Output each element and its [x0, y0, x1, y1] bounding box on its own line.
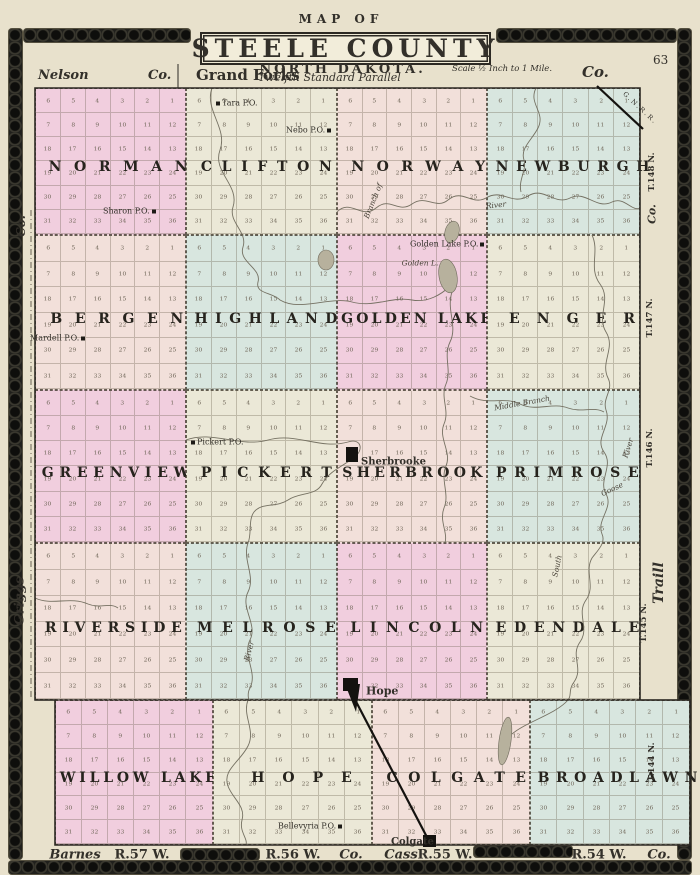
- section-18: 18: [488, 596, 513, 622]
- section-29: 29: [212, 186, 237, 210]
- section-5: 5: [557, 701, 583, 725]
- section-32: 32: [61, 364, 86, 390]
- edge-t-144-n-: T.144 N.: [647, 742, 657, 781]
- section-15: 15: [610, 749, 636, 773]
- place-tara-p-o-: Tara P.O.: [214, 99, 258, 108]
- section-26: 26: [477, 796, 503, 820]
- section-30: 30: [338, 492, 363, 517]
- section-36: 36: [160, 517, 185, 542]
- section-5: 5: [61, 89, 86, 113]
- section-29: 29: [82, 796, 108, 820]
- section-8: 8: [513, 416, 538, 441]
- section-15: 15: [412, 137, 437, 161]
- section-2: 2: [135, 236, 160, 262]
- section-25: 25: [160, 338, 185, 364]
- section-34: 34: [134, 820, 160, 844]
- section-5: 5: [363, 89, 388, 113]
- edge-traill: Traill: [651, 562, 667, 604]
- township-name: NORWAY: [338, 159, 499, 175]
- section-6: 6: [338, 544, 363, 570]
- township-name: RIVERSIDE: [36, 620, 191, 636]
- section-36: 36: [311, 210, 336, 234]
- section-31: 31: [36, 364, 61, 390]
- section-3: 3: [262, 236, 287, 262]
- section-34: 34: [412, 364, 437, 390]
- section-32: 32: [513, 673, 538, 699]
- section-30: 30: [36, 492, 61, 517]
- section-17: 17: [513, 287, 538, 313]
- section-3: 3: [412, 391, 437, 416]
- section-15: 15: [412, 287, 437, 313]
- section-35: 35: [135, 517, 160, 542]
- section-17: 17: [240, 749, 266, 773]
- section-10: 10: [412, 570, 437, 596]
- section-33: 33: [237, 673, 262, 699]
- section-6: 6: [338, 236, 363, 262]
- section-34: 34: [610, 820, 636, 844]
- section-16: 16: [237, 287, 262, 313]
- township-name: GOLDEN LAKE: [338, 311, 489, 327]
- township-willow-lake: 6543217891011121817161514131920212223243…: [55, 700, 213, 845]
- section-32: 32: [240, 820, 266, 844]
- bottom-edge-r-55-w--5: R.55 W.: [417, 848, 472, 863]
- section-35: 35: [589, 364, 614, 390]
- section-30: 30: [56, 796, 82, 820]
- section-35: 35: [636, 820, 662, 844]
- section-10: 10: [111, 262, 136, 288]
- section-29: 29: [212, 647, 237, 673]
- section-7: 7: [488, 113, 513, 137]
- section-36: 36: [461, 517, 486, 542]
- section-12: 12: [311, 570, 336, 596]
- section-1: 1: [614, 236, 639, 262]
- section-1: 1: [461, 391, 486, 416]
- section-26: 26: [135, 492, 160, 517]
- edge-co-: Co.: [646, 204, 659, 224]
- section-18: 18: [338, 137, 363, 161]
- section-8: 8: [363, 416, 388, 441]
- section-1: 1: [160, 544, 185, 570]
- section-29: 29: [513, 647, 538, 673]
- section-7: 7: [187, 570, 212, 596]
- section-5: 5: [212, 544, 237, 570]
- section-28: 28: [86, 492, 111, 517]
- section-25: 25: [461, 647, 486, 673]
- section-13: 13: [311, 287, 336, 313]
- section-9: 9: [538, 113, 563, 137]
- section-14: 14: [477, 749, 503, 773]
- section-13: 13: [461, 596, 486, 622]
- section-4: 4: [584, 701, 610, 725]
- section-7: 7: [531, 725, 557, 749]
- section-5: 5: [513, 89, 538, 113]
- po-marker: [81, 337, 85, 341]
- township-name: WILLOW LAKE: [56, 770, 216, 786]
- section-35: 35: [286, 210, 311, 234]
- section-8: 8: [513, 570, 538, 596]
- township-name: HIGHLAND: [187, 311, 343, 327]
- section-26: 26: [286, 186, 311, 210]
- section-2: 2: [589, 89, 614, 113]
- section-13: 13: [160, 287, 185, 313]
- section-7: 7: [338, 113, 363, 137]
- section-30: 30: [338, 338, 363, 364]
- section-36: 36: [614, 364, 639, 390]
- section-14: 14: [286, 441, 311, 466]
- section-11: 11: [437, 113, 462, 137]
- section-27: 27: [262, 338, 287, 364]
- section-18: 18: [531, 749, 557, 773]
- water-label-golden-l--0: Golden L.: [402, 259, 439, 268]
- section-26: 26: [589, 338, 614, 364]
- section-35: 35: [589, 210, 614, 234]
- section-14: 14: [319, 749, 345, 773]
- township-name: COLGATE: [373, 770, 540, 786]
- section-28: 28: [387, 338, 412, 364]
- section-31: 31: [488, 210, 513, 234]
- township-greenview: 6543217891011121817161514131920212223243…: [35, 390, 186, 543]
- section-28: 28: [584, 796, 610, 820]
- section-29: 29: [61, 647, 86, 673]
- section-36: 36: [186, 820, 212, 844]
- section-29: 29: [240, 796, 266, 820]
- section-30: 30: [187, 492, 212, 517]
- township-name: PICKERT: [187, 465, 346, 481]
- section-29: 29: [513, 338, 538, 364]
- section-28: 28: [86, 647, 111, 673]
- section-3: 3: [262, 89, 287, 113]
- section-10: 10: [262, 416, 287, 441]
- bottom-edge-r-57-w--1: R.57 W.: [114, 848, 169, 863]
- section-28: 28: [387, 492, 412, 517]
- section-30: 30: [36, 647, 61, 673]
- section-29: 29: [557, 796, 583, 820]
- section-26: 26: [437, 338, 462, 364]
- section-36: 36: [614, 517, 639, 542]
- section-29: 29: [513, 186, 538, 210]
- section-31: 31: [187, 210, 212, 234]
- section-32: 32: [363, 364, 388, 390]
- bottom-edge-co--3: Co.: [339, 848, 362, 863]
- section-7: 7: [36, 416, 61, 441]
- section-13: 13: [311, 137, 336, 161]
- section-32: 32: [61, 673, 86, 699]
- section-35: 35: [160, 820, 186, 844]
- section-13: 13: [160, 596, 185, 622]
- section-7: 7: [338, 416, 363, 441]
- section-16: 16: [387, 287, 412, 313]
- section-1: 1: [160, 89, 185, 113]
- section-11: 11: [135, 113, 160, 137]
- section-36: 36: [663, 820, 689, 844]
- section-11: 11: [160, 725, 186, 749]
- section-7: 7: [36, 570, 61, 596]
- section-16: 16: [538, 596, 563, 622]
- section-30: 30: [488, 338, 513, 364]
- section-5: 5: [363, 236, 388, 262]
- section-34: 34: [563, 364, 588, 390]
- section-17: 17: [61, 137, 86, 161]
- section-28: 28: [86, 338, 111, 364]
- section-9: 9: [425, 725, 451, 749]
- section-10: 10: [412, 113, 437, 137]
- township-name: NORMAN: [36, 159, 198, 175]
- section-35: 35: [286, 517, 311, 542]
- section-36: 36: [503, 820, 529, 844]
- section-30: 30: [214, 796, 240, 820]
- section-27: 27: [451, 796, 477, 820]
- township-name: EDENDALE: [488, 620, 647, 636]
- section-26: 26: [286, 492, 311, 517]
- section-32: 32: [212, 210, 237, 234]
- section-16: 16: [538, 441, 563, 466]
- section-13: 13: [614, 596, 639, 622]
- section-10: 10: [111, 113, 136, 137]
- township-name: NEWBURGH: [488, 159, 647, 175]
- section-2: 2: [477, 701, 503, 725]
- section-8: 8: [363, 570, 388, 596]
- section-16: 16: [86, 596, 111, 622]
- section-15: 15: [111, 287, 136, 313]
- section-13: 13: [461, 137, 486, 161]
- section-16: 16: [387, 137, 412, 161]
- place-golden-lake-p-o-: Golden Lake P.O.: [410, 240, 486, 249]
- section-34: 34: [262, 517, 287, 542]
- section-18: 18: [488, 287, 513, 313]
- section-29: 29: [363, 338, 388, 364]
- section-13: 13: [311, 596, 336, 622]
- section-36: 36: [160, 364, 185, 390]
- section-15: 15: [563, 137, 588, 161]
- bottom-edge-co--7: Co.: [647, 848, 670, 863]
- section-14: 14: [135, 596, 160, 622]
- section-3: 3: [262, 544, 287, 570]
- section-15: 15: [134, 749, 160, 773]
- section-5: 5: [513, 544, 538, 570]
- section-14: 14: [286, 137, 311, 161]
- section-10: 10: [262, 262, 287, 288]
- section-1: 1: [160, 391, 185, 416]
- section-7: 7: [373, 725, 399, 749]
- section-3: 3: [563, 391, 588, 416]
- section-32: 32: [513, 364, 538, 390]
- section-6: 6: [187, 89, 212, 113]
- section-11: 11: [589, 113, 614, 137]
- section-31: 31: [338, 364, 363, 390]
- edge-t-145-n-: T.145 N.: [639, 603, 649, 642]
- section-3: 3: [412, 89, 437, 113]
- section-25: 25: [160, 186, 185, 210]
- section-29: 29: [363, 647, 388, 673]
- section-33: 33: [86, 673, 111, 699]
- section-26: 26: [589, 186, 614, 210]
- section-31: 31: [338, 673, 363, 699]
- section-31: 31: [338, 210, 363, 234]
- section-25: 25: [614, 647, 639, 673]
- edge-t-148-n-: T.148 N.: [647, 152, 657, 191]
- place-sharon-p-o-: Sharon P.O.: [103, 207, 158, 216]
- section-25: 25: [461, 492, 486, 517]
- section-1: 1: [503, 701, 529, 725]
- section-29: 29: [363, 492, 388, 517]
- section-32: 32: [212, 364, 237, 390]
- section-31: 31: [531, 820, 557, 844]
- section-27: 27: [412, 338, 437, 364]
- section-28: 28: [108, 796, 134, 820]
- section-18: 18: [338, 287, 363, 313]
- section-2: 2: [636, 701, 662, 725]
- section-15: 15: [262, 441, 287, 466]
- section-28: 28: [266, 796, 292, 820]
- section-13: 13: [503, 749, 529, 773]
- section-34: 34: [412, 517, 437, 542]
- section-3: 3: [563, 89, 588, 113]
- section-5: 5: [363, 391, 388, 416]
- section-16: 16: [86, 287, 111, 313]
- section-36: 36: [311, 364, 336, 390]
- section-11: 11: [477, 725, 503, 749]
- section-27: 27: [563, 647, 588, 673]
- section-17: 17: [61, 441, 86, 466]
- section-15: 15: [111, 137, 136, 161]
- section-17: 17: [212, 287, 237, 313]
- section-34: 34: [412, 210, 437, 234]
- section-1: 1: [461, 89, 486, 113]
- township-name: BROADLAWN: [531, 770, 696, 786]
- section-30: 30: [187, 338, 212, 364]
- section-16: 16: [86, 137, 111, 161]
- section-3: 3: [111, 391, 136, 416]
- section-7: 7: [187, 113, 212, 137]
- section-15: 15: [262, 137, 287, 161]
- section-16: 16: [584, 749, 610, 773]
- section-14: 14: [135, 441, 160, 466]
- section-28: 28: [425, 796, 451, 820]
- section-1: 1: [461, 544, 486, 570]
- section-8: 8: [363, 113, 388, 137]
- section-12: 12: [614, 262, 639, 288]
- section-2: 2: [437, 89, 462, 113]
- section-36: 36: [345, 820, 371, 844]
- section-6: 6: [187, 236, 212, 262]
- township-newburgh: 6543217891011121817161514131920212223243…: [487, 88, 640, 235]
- section-5: 5: [240, 701, 266, 725]
- section-17: 17: [212, 137, 237, 161]
- section-33: 33: [237, 517, 262, 542]
- section-14: 14: [286, 287, 311, 313]
- section-25: 25: [614, 186, 639, 210]
- section-12: 12: [160, 570, 185, 596]
- section-7: 7: [488, 262, 513, 288]
- section-18: 18: [187, 596, 212, 622]
- section-6: 6: [488, 89, 513, 113]
- section-32: 32: [513, 517, 538, 542]
- section-35: 35: [286, 364, 311, 390]
- township-name: CLIFTON: [187, 159, 346, 175]
- section-31: 31: [488, 364, 513, 390]
- section-26: 26: [286, 647, 311, 673]
- section-34: 34: [563, 673, 588, 699]
- section-31: 31: [187, 517, 212, 542]
- section-27: 27: [292, 796, 318, 820]
- section-28: 28: [538, 647, 563, 673]
- section-36: 36: [461, 210, 486, 234]
- place-nebo-p-o-: Nebo P.O.: [286, 126, 333, 135]
- section-6: 6: [187, 544, 212, 570]
- section-9: 9: [584, 725, 610, 749]
- section-11: 11: [286, 416, 311, 441]
- section-9: 9: [237, 113, 262, 137]
- section-18: 18: [214, 749, 240, 773]
- section-29: 29: [61, 186, 86, 210]
- section-12: 12: [663, 725, 689, 749]
- section-27: 27: [111, 492, 136, 517]
- section-14: 14: [589, 596, 614, 622]
- section-27: 27: [412, 647, 437, 673]
- section-25: 25: [345, 796, 371, 820]
- section-14: 14: [135, 287, 160, 313]
- section-25: 25: [186, 796, 212, 820]
- section-16: 16: [425, 749, 451, 773]
- section-12: 12: [160, 262, 185, 288]
- section-34: 34: [262, 673, 287, 699]
- section-36: 36: [461, 364, 486, 390]
- section-27: 27: [111, 338, 136, 364]
- section-8: 8: [363, 262, 388, 288]
- section-17: 17: [363, 287, 388, 313]
- section-1: 1: [311, 544, 336, 570]
- section-15: 15: [262, 596, 287, 622]
- po-label: Sharon P.O.: [103, 207, 150, 216]
- section-12: 12: [461, 570, 486, 596]
- section-11: 11: [286, 262, 311, 288]
- section-7: 7: [56, 725, 82, 749]
- section-3: 3: [451, 701, 477, 725]
- bottom-edge-r-56-w--2: R.56 W.: [265, 848, 320, 863]
- section-30: 30: [531, 796, 557, 820]
- section-25: 25: [461, 186, 486, 210]
- section-10: 10: [292, 725, 318, 749]
- section-12: 12: [311, 416, 336, 441]
- section-6: 6: [36, 391, 61, 416]
- section-17: 17: [61, 287, 86, 313]
- section-17: 17: [399, 749, 425, 773]
- section-29: 29: [61, 492, 86, 517]
- edge-co-: Co.: [14, 215, 28, 237]
- section-33: 33: [86, 517, 111, 542]
- section-28: 28: [538, 186, 563, 210]
- place-pickert-p-o-: Pickert P.O.: [189, 438, 244, 447]
- section-33: 33: [538, 673, 563, 699]
- section-4: 4: [86, 544, 111, 570]
- section-1: 1: [186, 701, 212, 725]
- township-edendale: 6543217891011121817161514131920212223243…: [487, 543, 640, 700]
- section-35: 35: [135, 364, 160, 390]
- section-30: 30: [338, 647, 363, 673]
- section-3: 3: [412, 544, 437, 570]
- section-9: 9: [237, 262, 262, 288]
- section-8: 8: [82, 725, 108, 749]
- po-marker: [338, 825, 342, 829]
- section-10: 10: [563, 262, 588, 288]
- section-15: 15: [563, 287, 588, 313]
- section-15: 15: [563, 441, 588, 466]
- section-12: 12: [186, 725, 212, 749]
- section-11: 11: [135, 570, 160, 596]
- section-34: 34: [412, 673, 437, 699]
- township-enger: 6543217891011121817161514131920212223243…: [487, 235, 640, 390]
- section-14: 14: [437, 287, 462, 313]
